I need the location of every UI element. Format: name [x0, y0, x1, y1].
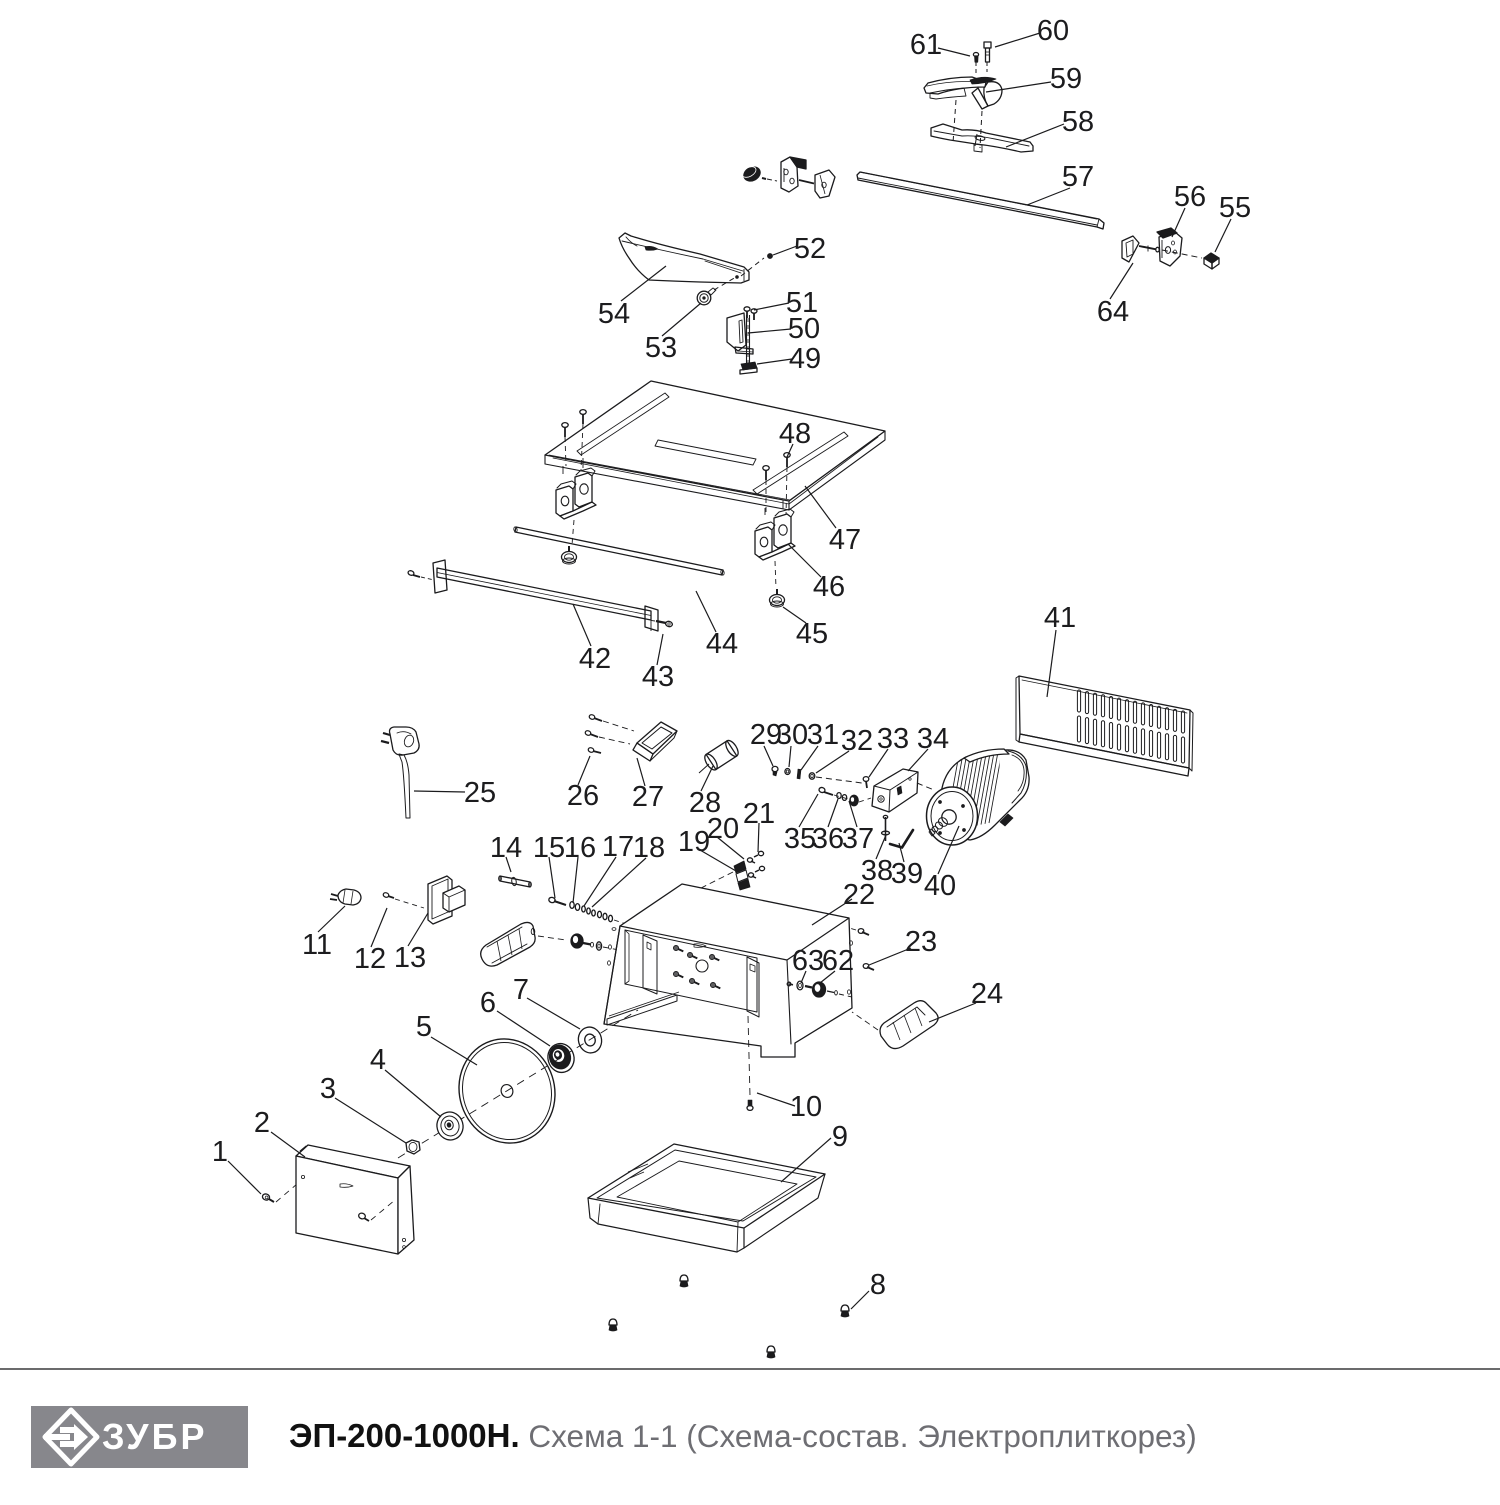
svg-text:27: 27: [632, 781, 664, 813]
svg-text:53: 53: [645, 332, 677, 364]
svg-text:42: 42: [579, 643, 611, 675]
svg-text:60: 60: [1037, 15, 1069, 47]
svg-text:64: 64: [1097, 296, 1129, 328]
svg-text:4: 4: [370, 1044, 386, 1076]
svg-text:19: 19: [678, 826, 710, 858]
svg-text:1: 1: [212, 1136, 228, 1168]
svg-text:10: 10: [790, 1091, 822, 1123]
svg-text:31: 31: [807, 719, 839, 751]
svg-text:7: 7: [513, 974, 529, 1006]
svg-text:43: 43: [642, 661, 674, 693]
svg-text:14: 14: [490, 832, 522, 864]
svg-text:2: 2: [254, 1107, 270, 1139]
svg-text:38: 38: [861, 855, 893, 887]
svg-text:28: 28: [689, 787, 721, 819]
svg-text:47: 47: [829, 524, 861, 556]
svg-text:15: 15: [533, 832, 565, 864]
svg-text:37: 37: [842, 823, 874, 855]
svg-text:36: 36: [812, 823, 844, 855]
svg-text:40: 40: [924, 870, 956, 902]
svg-text:30: 30: [776, 719, 808, 751]
svg-text:55: 55: [1219, 192, 1251, 224]
svg-text:57: 57: [1062, 161, 1094, 193]
svg-text:58: 58: [1062, 106, 1094, 138]
svg-text:18: 18: [633, 832, 665, 864]
svg-text:11: 11: [302, 929, 332, 961]
svg-text:6: 6: [480, 987, 496, 1019]
svg-text:16: 16: [564, 832, 596, 864]
svg-text:ЗУБР: ЗУБР: [102, 1416, 207, 1457]
svg-text:45: 45: [796, 618, 828, 650]
svg-text:56: 56: [1174, 181, 1206, 213]
svg-text:9: 9: [832, 1121, 848, 1153]
svg-text:63: 63: [792, 945, 824, 977]
svg-text:39: 39: [891, 858, 923, 890]
svg-text:41: 41: [1044, 602, 1076, 634]
svg-text:48: 48: [779, 418, 811, 450]
svg-text:17: 17: [602, 831, 634, 863]
svg-text:24: 24: [971, 978, 1003, 1010]
svg-text:46: 46: [813, 571, 845, 603]
svg-text:21: 21: [743, 798, 775, 830]
svg-text:23: 23: [905, 926, 937, 958]
svg-text:44: 44: [706, 628, 738, 660]
svg-text:49: 49: [789, 343, 821, 375]
svg-text:26: 26: [567, 780, 599, 812]
svg-text:59: 59: [1050, 63, 1082, 95]
svg-text:5: 5: [416, 1011, 432, 1043]
svg-text:62: 62: [822, 945, 854, 977]
svg-text:12: 12: [354, 943, 386, 975]
svg-text:32: 32: [841, 725, 873, 757]
svg-text:13: 13: [394, 942, 426, 974]
svg-text:8: 8: [870, 1269, 886, 1301]
svg-text:52: 52: [794, 233, 826, 265]
svg-text:ЭП-200-1000Н. Схема 1-1 (Схема: ЭП-200-1000Н. Схема 1-1 (Схема-состав. Э…: [289, 1417, 1197, 1454]
svg-text:33: 33: [877, 723, 909, 755]
svg-text:25: 25: [464, 777, 496, 809]
svg-text:54: 54: [598, 298, 630, 330]
svg-text:3: 3: [320, 1073, 336, 1105]
svg-text:51: 51: [786, 287, 818, 319]
svg-text:61: 61: [910, 29, 942, 61]
svg-text:34: 34: [917, 723, 949, 755]
